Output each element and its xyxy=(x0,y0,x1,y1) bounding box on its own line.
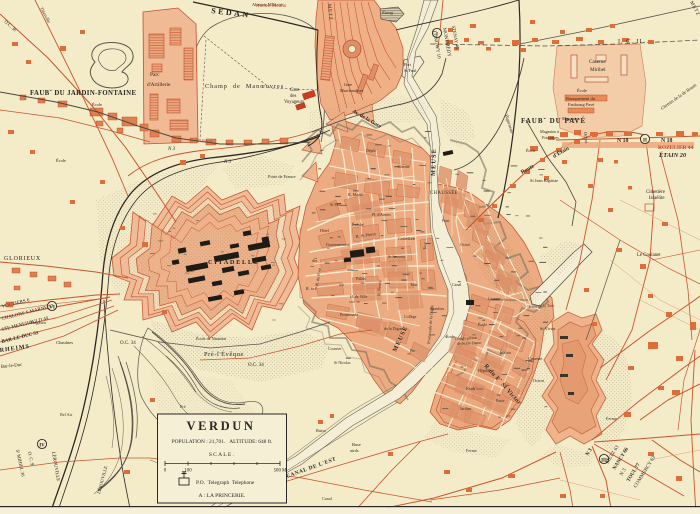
svg-text:École: École xyxy=(577,88,587,93)
svg-text:Courrier: Courrier xyxy=(328,346,342,351)
svg-text:R. St P: R. St P xyxy=(306,286,318,291)
svg-text:I. C. II: I. C. II xyxy=(618,38,643,45)
svg-text:Porte: Porte xyxy=(496,398,505,403)
svg-text:CITADELLE: CITADELLE xyxy=(208,259,260,266)
svg-text:St Victor: St Victor xyxy=(540,326,556,331)
svg-text:O.C. 34: O.C. 34 xyxy=(120,341,136,346)
svg-text:O.C. 34: O.C. 34 xyxy=(248,363,264,368)
svg-text:Gouvernement: Gouvernement xyxy=(326,242,351,247)
svg-text:Gᵇ Route: Gᵇ Route xyxy=(196,138,213,144)
svg-text:P.O. Telegraph Telephone: P.O. Telegraph Telephone xyxy=(196,480,255,486)
svg-text:École: École xyxy=(56,158,66,163)
svg-text:St Jean Baptiste: St Jean Baptiste xyxy=(530,178,558,183)
svg-text:IV: IV xyxy=(39,443,45,448)
svg-text:Étang: Étang xyxy=(381,10,394,15)
svg-text:Pl. d'Armes: Pl. d'Armes xyxy=(372,212,391,217)
svg-text:ROZELIER 44: ROZELIER 44 xyxy=(658,145,694,151)
svg-text:Promenade: Promenade xyxy=(340,312,358,317)
svg-text:de la Digue: de la Digue xyxy=(384,326,403,331)
svg-text:MEUSE: MEUSE xyxy=(430,148,438,176)
svg-text:Magasins: Magasins xyxy=(562,116,580,121)
svg-text:Caserne: Caserne xyxy=(488,296,501,301)
svg-text:POPULATION : 21,701. ALTITUD: POPULATION : 21,701. ALTITUDE: 648 ft. xyxy=(172,438,273,445)
svg-text:SCALE.: SCALE. xyxy=(209,452,235,458)
svg-text:GLORIEUX: GLORIEUX xyxy=(4,256,41,262)
svg-text:Fourrages: Fourrages xyxy=(542,135,559,140)
svg-text:École: École xyxy=(478,322,487,327)
svg-text:Ferme: Ferme xyxy=(606,416,617,421)
svg-text:Octroi: Octroi xyxy=(533,378,545,383)
svg-text:100: 100 xyxy=(184,469,192,474)
svg-text:II: II xyxy=(643,138,647,143)
svg-text:Dépôt: Dépôt xyxy=(366,148,377,153)
svg-text:Parc: Parc xyxy=(150,72,160,78)
svg-text:Cathédrale: Cathédrale xyxy=(398,236,416,241)
svg-text:Port: Port xyxy=(404,62,412,67)
svg-text:des: des xyxy=(290,94,297,99)
svg-text:Voyageurs: Voyageurs xyxy=(284,100,304,105)
svg-text:airds: airds xyxy=(350,448,359,453)
svg-text:Marchandises: Marchandises xyxy=(340,88,364,93)
svg-text:Bel Air: Bel Air xyxy=(60,412,73,417)
svg-text:Chaulnes: Chaulnes xyxy=(56,340,73,345)
svg-text:Marais: Marais xyxy=(500,350,512,355)
svg-text:École: École xyxy=(92,102,102,107)
svg-text:Collège: Collège xyxy=(404,314,417,319)
svg-text:Magasins à: Magasins à xyxy=(540,129,559,134)
svg-text:Porte de France: Porte de France xyxy=(268,174,296,179)
svg-text:Le Coulanet: Le Coulanet xyxy=(637,253,661,258)
svg-text:St Sauveur: St Sauveur xyxy=(388,254,406,259)
svg-text:Citerne: Citerne xyxy=(398,164,410,169)
svg-text:H. de Ville: H. de Ville xyxy=(350,294,368,299)
svg-text:A : LA PRINCERIE.: A : LA PRINCERIE. xyxy=(199,493,247,499)
svg-text:VERDUN: VERDUN xyxy=(186,419,255,433)
svg-text:École de Natation: École de Natation xyxy=(196,336,227,341)
svg-text:Baraquement du: Baraquement du xyxy=(566,96,596,101)
svg-text:Palais: Palais xyxy=(356,276,366,281)
svg-text:Miribel: Miribel xyxy=(590,67,606,73)
svg-text:Gare: Gare xyxy=(344,82,352,87)
svg-text:N 3: N 3 xyxy=(167,147,176,152)
svg-text:Pont: Pont xyxy=(442,218,450,223)
svg-text:Jardins: Jardins xyxy=(460,406,472,411)
svg-text:Cimetière: Cimetière xyxy=(646,190,665,195)
svg-text:Buse: Buse xyxy=(352,442,361,447)
svg-text:R. Mazel: R. Mazel xyxy=(348,192,364,197)
svg-text:Canal: Canal xyxy=(322,496,333,501)
svg-text:Caserne: Caserne xyxy=(528,356,542,361)
svg-text:Pte: Pte xyxy=(410,348,415,353)
svg-text:FAUBˇ DU JARDIN-FONTAINE: FAUBˇ DU JARDIN-FONTAINE xyxy=(30,90,136,97)
svg-text:Champ de Manœuvres: Champ de Manœuvres xyxy=(205,83,284,90)
svg-text:Pré: Pré xyxy=(180,404,186,409)
svg-text:Tour: Tour xyxy=(410,282,418,287)
svg-text:St Nicolas: St Nicolas xyxy=(334,360,351,365)
svg-text:CHAUSSÉE: CHAUSSÉE xyxy=(430,190,458,196)
svg-text:d'Artillerie: d'Artillerie xyxy=(147,82,171,88)
svg-text:N 18: N 18 xyxy=(617,138,629,144)
svg-text:École: École xyxy=(526,148,536,153)
svg-text:Pré-l'Évêque: Pré-l'Évêque xyxy=(204,350,244,358)
svg-text:500 M: 500 M xyxy=(274,469,287,474)
svg-text:Faubourg Pavé: Faubourg Pavé xyxy=(568,102,594,107)
svg-text:Évêché: Évêché xyxy=(352,222,364,227)
svg-text:Israélite: Israélite xyxy=(649,196,664,201)
svg-text:Gare: Gare xyxy=(290,88,299,93)
svg-text:des: des xyxy=(312,258,318,263)
svg-text:Tour: Tour xyxy=(422,241,428,250)
svg-text:Caserne: Caserne xyxy=(589,59,606,65)
svg-text:Ruiss: Ruiss xyxy=(316,428,326,433)
svg-text:St Paul: St Paul xyxy=(330,202,342,207)
svg-text:Octroi: Octroi xyxy=(460,242,471,247)
svg-text:Canal: Canal xyxy=(452,282,462,287)
svg-text:St Paul: St Paul xyxy=(404,68,417,73)
svg-text:ÉTAIN 20: ÉTAIN 20 xyxy=(658,151,687,159)
svg-text:Ancien Moulin: Ancien Moulin xyxy=(256,4,287,9)
svg-text:N 18: N 18 xyxy=(661,138,673,144)
svg-text:Faubˇ: Faubˇ xyxy=(466,386,477,391)
svg-text:Ferme: Ferme xyxy=(466,448,477,453)
svg-text:Hôtel: Hôtel xyxy=(320,228,330,233)
svg-text:N 3: N 3 xyxy=(223,160,232,165)
